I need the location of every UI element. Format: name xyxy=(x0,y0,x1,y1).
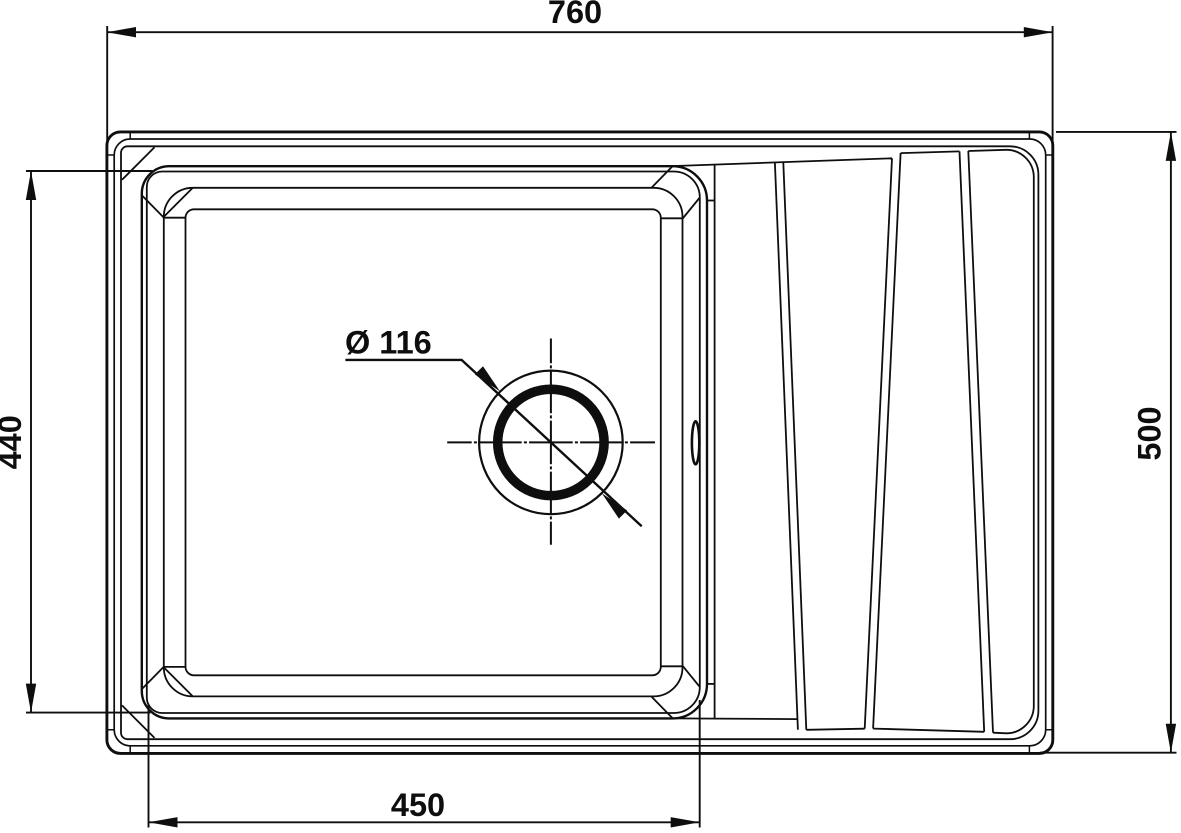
svg-text:440: 440 xyxy=(0,415,28,469)
svg-text:760: 760 xyxy=(548,0,602,30)
svg-text:450: 450 xyxy=(391,787,445,823)
svg-text:Ø 116: Ø 116 xyxy=(345,325,432,361)
svg-text:500: 500 xyxy=(1132,406,1168,460)
